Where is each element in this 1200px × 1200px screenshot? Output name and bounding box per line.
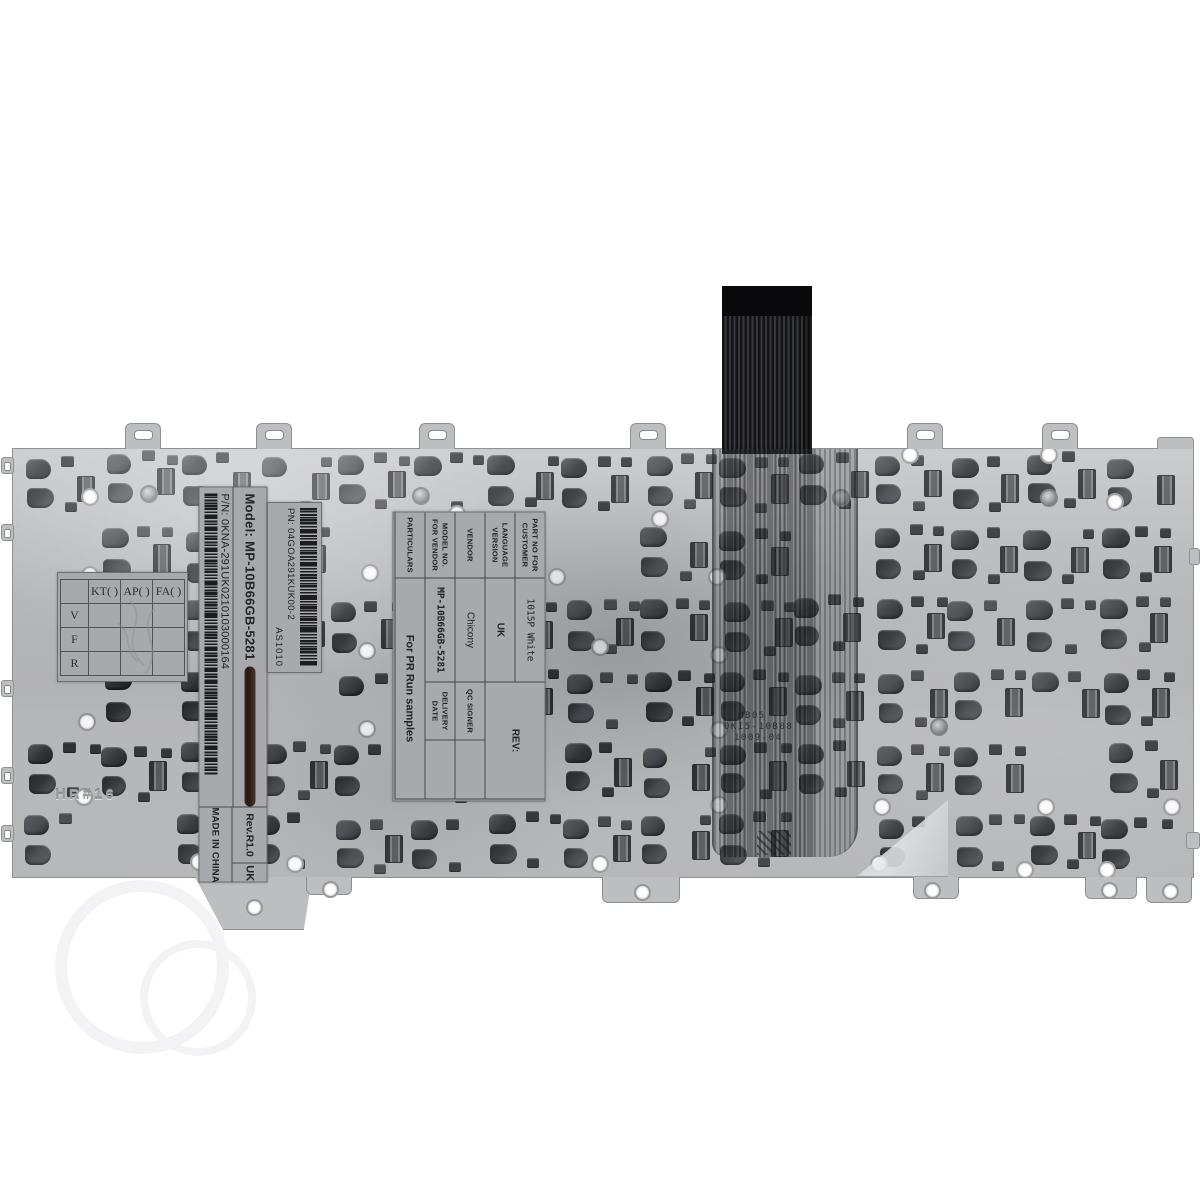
qc-empty-cell	[89, 652, 121, 676]
spec-value: MP-10B66GB-5281	[425, 579, 455, 683]
screw-hole	[591, 638, 609, 656]
watermark-ring	[140, 940, 256, 1056]
mounting-tab	[1157, 437, 1194, 449]
qc-empty-cell	[89, 604, 121, 628]
mounting-tab	[1, 825, 14, 842]
screw-hole	[1040, 449, 1058, 464]
membrane-print-line: MB05	[724, 711, 834, 722]
mounting-tab	[1, 680, 14, 697]
pn-barcode-sticker: PN: 04GOA291KUK00-2 AS1010	[267, 502, 322, 673]
tab-slot	[4, 529, 11, 538]
screw-hole	[548, 568, 566, 586]
tab-hole	[246, 899, 263, 916]
qc-empty-cell	[153, 604, 185, 628]
keyboard-backplate-photo: MB05 0KI5-10B88 1009-04 HR#16 Model: MP-…	[0, 0, 1200, 1200]
rivet	[412, 487, 430, 505]
tab-slot	[134, 430, 153, 440]
screw-hole	[1163, 798, 1181, 816]
metal-backplate	[12, 448, 1194, 878]
mounting-tab	[1042, 423, 1078, 449]
tab-slot	[4, 772, 11, 781]
qc-col-header: FA( )	[153, 580, 185, 604]
tab-slot	[4, 462, 11, 471]
membrane-print-line: 1009-04	[724, 733, 834, 744]
tab-slot	[639, 430, 658, 440]
mounting-tab	[602, 877, 680, 903]
membrane-print-line: 0KI5-10B88	[724, 722, 834, 733]
rivet	[930, 718, 948, 736]
qc-empty-cell	[121, 628, 153, 652]
screw-hole	[651, 510, 669, 528]
tab-slot	[265, 430, 284, 440]
mounting-tab	[419, 423, 455, 449]
spec-label: VENDOR	[455, 513, 485, 579]
mounting-tab	[907, 423, 943, 449]
spec-label: LANGUAGE VERSION	[485, 513, 515, 579]
tab-slot	[1051, 430, 1070, 440]
spec-qc-label: QC SIGNER	[455, 683, 485, 741]
mounting-tab	[1186, 832, 1200, 849]
mounting-tab	[1, 457, 14, 474]
qc-table: KT( ) AP( ) FA( ) V F R	[60, 579, 185, 676]
ribbon-cable	[722, 286, 812, 454]
screw-hole	[358, 642, 376, 660]
made-in-text: MADE IN CHINA	[200, 807, 232, 882]
rivet	[140, 485, 158, 503]
qc-col-header: KT( )	[89, 580, 121, 604]
spec-empty-cell	[425, 741, 455, 800]
screw-hole	[81, 488, 99, 506]
tab-slot	[428, 430, 447, 440]
mounting-tab	[1, 524, 14, 541]
qc-row-header: R	[61, 652, 89, 676]
spec-value: UK	[485, 579, 515, 683]
screw-holes	[13, 449, 1193, 877]
tab-hole	[634, 884, 651, 901]
part-number-text: P/N: 0KNA-291UK0210103000164	[219, 494, 231, 803]
spec-value: 1015P White	[515, 579, 545, 683]
tab-hole	[322, 881, 339, 898]
qc-row-header: F	[61, 628, 89, 652]
mounting-tab	[256, 423, 292, 449]
screw-hole	[1098, 861, 1116, 877]
screw-hole	[1037, 798, 1055, 816]
tab-hole	[1101, 882, 1118, 899]
mounting-tab	[1146, 877, 1192, 903]
spec-empty-cell	[455, 741, 485, 800]
spec-value: For PR Run samples	[395, 579, 425, 800]
spec-table: PART NO FOR CUSTOMER 1015P White REV: LA…	[395, 513, 545, 801]
revision-text: Rev.R1.0	[233, 807, 267, 863]
pn-barcode	[205, 494, 218, 776]
screw-hole	[286, 855, 304, 873]
qc-empty-cell	[61, 580, 89, 604]
screw-hole	[1106, 493, 1124, 511]
membrane-trace-strip	[723, 449, 815, 857]
screw-hole	[361, 564, 379, 582]
pn-code-text: AS1010	[273, 508, 284, 667]
tab-slot	[4, 685, 11, 694]
model-number-text: Model: MP-10B66GB-5281	[243, 494, 258, 661]
qc-empty-cell	[121, 652, 153, 676]
spec-value: Chicony	[455, 579, 485, 683]
tab-slot	[4, 830, 11, 839]
spec-delivery-label: DELIVERY DATE	[425, 683, 455, 741]
language-text: UK	[233, 863, 267, 882]
screw-hole	[1016, 861, 1034, 877]
screw-hole	[873, 798, 891, 816]
qc-empty-cell	[121, 604, 153, 628]
screw-hole	[78, 713, 96, 731]
mounting-tab	[1, 767, 14, 784]
spec-label: PART NO FOR CUSTOMER	[515, 513, 545, 579]
etched-plate-code: HR#16	[55, 786, 117, 803]
tab-hole	[1162, 883, 1179, 900]
qc-empty-cell	[89, 628, 121, 652]
model-pn-sticker: Model: MP-10B66GB-5281 P/N: 0KNA-291UK02…	[199, 487, 268, 883]
screw-hole	[358, 720, 376, 738]
mounting-tab	[306, 877, 352, 895]
model-pn-main: Model: MP-10B66GB-5281 P/N: 0KNA-291UK02…	[200, 488, 267, 808]
tab-slot	[916, 430, 935, 440]
mounting-tab	[125, 423, 161, 449]
qc-empty-cell	[153, 652, 185, 676]
screw-hole	[591, 855, 609, 873]
qc-empty-cell	[153, 628, 185, 652]
spec-rev-label: REV:	[485, 683, 545, 800]
cable-stiffener	[722, 286, 812, 316]
screw-hole	[901, 449, 919, 464]
qc-check-grid-sticker: KT( ) AP( ) FA( ) V F R	[57, 572, 188, 682]
marker-smear	[245, 666, 256, 806]
membrane-dot-matrix-print: MB05 0KI5-10B88 1009-04	[724, 711, 834, 744]
spec-label: PARTICULARS	[395, 513, 425, 579]
tab-hole	[924, 882, 941, 899]
qc-row-header: V	[61, 604, 89, 628]
qc-col-header: AP( )	[121, 580, 153, 604]
membrane-hatch-mark	[757, 831, 791, 855]
mounting-tab	[630, 423, 666, 449]
barcode	[300, 508, 317, 667]
rivet	[1040, 489, 1058, 507]
pn-text: PN: 04GOA291KUK00-2	[285, 508, 296, 667]
vendor-spec-sticker: PART NO FOR CUSTOMER 1015P White REV: LA…	[393, 512, 546, 802]
spec-label: MODEL NO. FOR VENDOR	[425, 513, 455, 579]
mounting-tab	[1189, 548, 1200, 565]
mounting-tab	[913, 877, 959, 899]
mounting-tab	[1085, 877, 1137, 899]
membrane-film: MB05 0KI5-10B88 1009-04	[712, 449, 858, 857]
